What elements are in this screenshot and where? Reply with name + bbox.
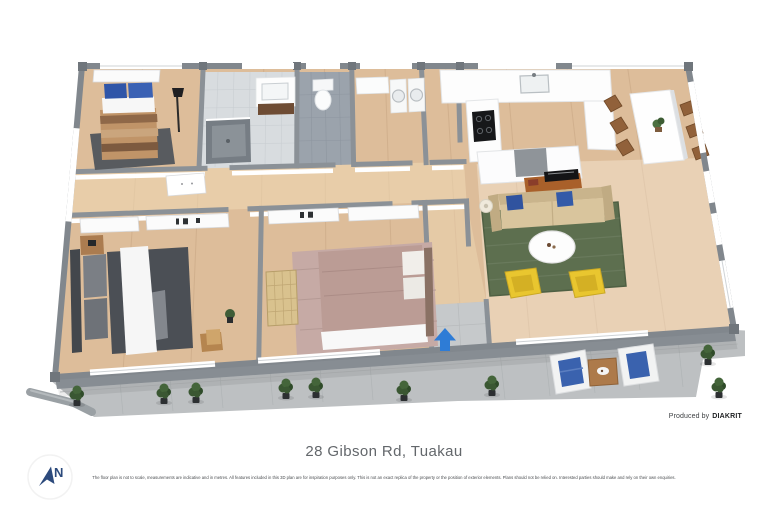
disclaimer-text: The floor plan is not to scale, measurem… xyxy=(92,475,675,480)
living-room-furniture xyxy=(480,185,627,298)
entry-floor xyxy=(430,302,490,351)
floor-plan-page: Produced byDIAKRIT 28 Gibson Rd, Tuakau … xyxy=(0,0,768,512)
compass-icon: N xyxy=(27,454,73,500)
floor-plan-image xyxy=(0,0,768,512)
compass-north-label: N xyxy=(54,465,63,480)
address-title: 28 Gibson Rd, Tuakau xyxy=(305,443,462,460)
credit-prefix: Produced by xyxy=(669,413,709,420)
toilet-fixtures xyxy=(313,79,333,110)
hallway-cabinet xyxy=(166,173,206,196)
credit-line: Produced byDIAKRIT xyxy=(669,413,742,420)
credit-brand: DIAKRIT xyxy=(712,413,742,420)
